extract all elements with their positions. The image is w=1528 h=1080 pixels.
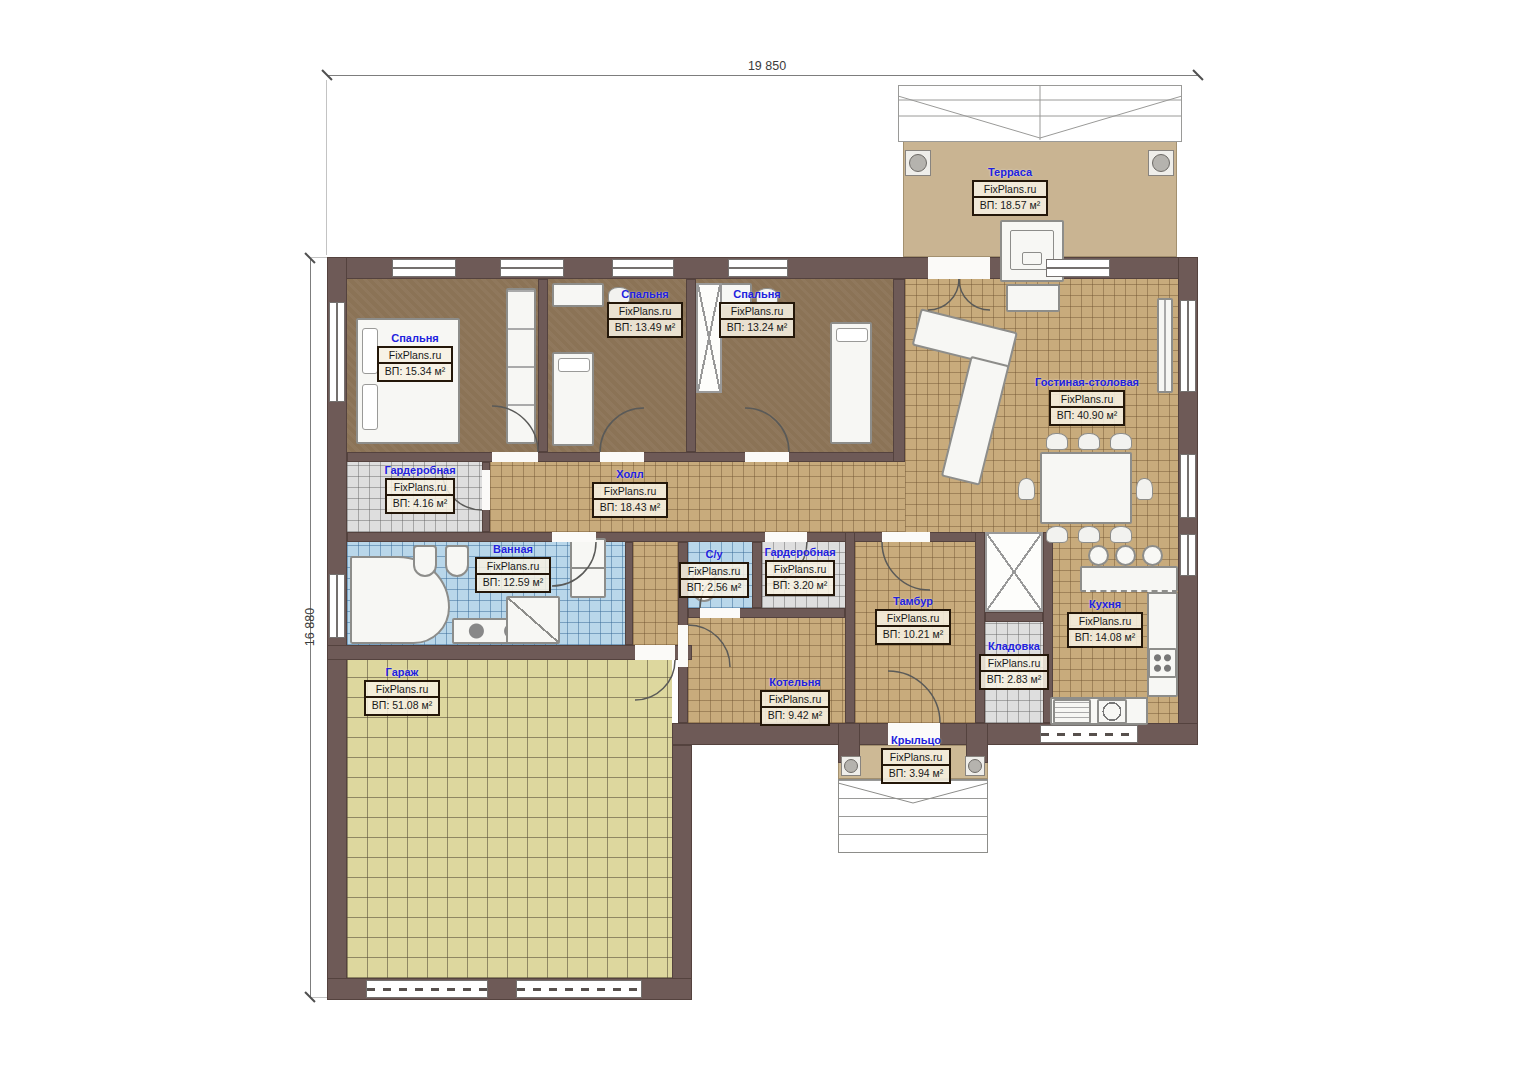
door-opening [678, 625, 688, 667]
room-brand: FixPlans.ru [762, 692, 828, 708]
room-brand: FixPlans.ru [981, 656, 1047, 672]
window [728, 259, 788, 277]
room-info-box: FixPlans.ru ВП: 3.94 м² [881, 748, 951, 784]
room-info-box: FixPlans.ru ВП: 12.59 м² [475, 557, 551, 593]
room-label-wardrobe2: Гардеробная FixPlans.ru ВП: 3.20 м² [740, 546, 860, 596]
garage-door [366, 980, 488, 998]
door-opening [765, 532, 807, 542]
window [1180, 300, 1196, 392]
door-opening [492, 452, 538, 462]
kitchen-sink [1097, 699, 1127, 724]
room-area: ВП: 10.21 м² [877, 627, 949, 643]
room-info-box: FixPlans.ru ВП: 18.43 м² [592, 482, 668, 518]
bar-stool [1088, 545, 1109, 566]
terrace-pillar [905, 150, 931, 176]
room-name: Гардеробная [740, 546, 860, 559]
room-label-bedroom3: Спальня FixPlans.ru ВП: 13.24 м² [697, 288, 817, 338]
room-name: Холл [570, 468, 690, 481]
room-name: Крыльцо [856, 734, 976, 747]
room-info-box: FixPlans.ru ВП: 13.24 м² [719, 302, 795, 338]
room-name: Кладовка [954, 640, 1074, 653]
dining-chair [1078, 526, 1100, 543]
room-label-bedroom2: Спальня FixPlans.ru ВП: 13.49 м² [585, 288, 705, 338]
room-brand: FixPlans.ru [681, 564, 747, 580]
room-info-box: FixPlans.ru ВП: 10.21 м² [875, 609, 951, 645]
wall-bedroom-divider [538, 279, 548, 452]
wall-garage-right [672, 745, 692, 1000]
wall-storage-top [985, 612, 1043, 622]
dishwasher [1053, 699, 1091, 724]
kitchen-bar-counter [1080, 566, 1178, 592]
room-info-box: FixPlans.ru ВП: 15.34 м² [377, 346, 453, 382]
room-label-bathroom: Ванная FixPlans.ru ВП: 12.59 м² [453, 543, 573, 593]
window [329, 302, 345, 402]
room-area: ВП: 3.20 м² [767, 578, 833, 594]
room-brand: FixPlans.ru [767, 562, 833, 578]
room-brand: FixPlans.ru [594, 484, 666, 500]
closet-wardrobe [985, 532, 1043, 612]
room-label-living-dining: Гостиная-столовая FixPlans.ru ВП: 40.90 … [999, 376, 1175, 426]
dining-chair [1018, 478, 1035, 500]
wardrobe-unit [506, 288, 536, 444]
dimension-extension-line [311, 997, 327, 998]
dining-chair [1110, 526, 1132, 543]
door-opening [482, 470, 490, 510]
bar-stool [1142, 545, 1163, 566]
room-name: Спальня [355, 332, 475, 345]
room-info-box: FixPlans.ru ВП: 3.20 м² [765, 560, 835, 596]
room-label-storage: Кладовка FixPlans.ru ВП: 2.83 м² [954, 640, 1074, 690]
dining-chair [1110, 433, 1132, 450]
hall-floor [490, 462, 905, 532]
pillar-circle [1152, 154, 1170, 172]
window [1046, 259, 1110, 277]
room-brand: FixPlans.ru [366, 682, 438, 698]
room-brand: FixPlans.ru [1069, 614, 1141, 630]
room-area: ВП: 9.42 м² [762, 708, 828, 724]
window [1180, 534, 1196, 576]
room-label-boiler: Котельня FixPlans.ru ВП: 9.42 м² [735, 676, 855, 726]
room-info-box: FixPlans.ru ВП: 2.83 м² [979, 654, 1049, 690]
window [500, 259, 564, 277]
room-label-terrace: Терраса FixPlans.ru ВП: 18.57 м² [950, 166, 1070, 216]
washer-dryer-stack [570, 538, 606, 598]
room-area: ВП: 13.24 м² [721, 320, 793, 336]
kitchen-window [1040, 725, 1138, 743]
room-label-bedroom1: Спальня FixPlans.ru ВП: 15.34 м² [355, 332, 475, 382]
room-brand: FixPlans.ru [877, 611, 949, 627]
room-area: ВП: 14.08 м² [1069, 630, 1141, 646]
stove [1148, 648, 1177, 678]
dimension-line-top [327, 75, 1198, 76]
room-info-box: FixPlans.ru ВП: 4.16 м² [385, 478, 455, 514]
room-label-porch: Крыльцо FixPlans.ru ВП: 3.94 м² [856, 734, 976, 784]
room-label-vestibule: Тамбур FixPlans.ru ВП: 10.21 м² [853, 595, 973, 645]
room-label-hall: Холл FixPlans.ru ВП: 18.43 м² [570, 468, 690, 518]
room-name: Спальня [697, 288, 817, 301]
window [392, 259, 456, 277]
shower [506, 596, 560, 644]
garage-door [516, 980, 642, 998]
door-opening [882, 532, 930, 542]
terrace-bbq-core [1022, 252, 1042, 265]
room-name: Гараж [342, 666, 462, 679]
wall-vestibule-right [975, 532, 985, 723]
dimension-label-top: 19 850 [732, 59, 802, 73]
room-area: ВП: 40.90 м² [1051, 408, 1123, 424]
door-opening [600, 452, 644, 462]
door-opening [745, 452, 789, 462]
room-info-box: FixPlans.ru ВП: 14.08 м² [1067, 612, 1143, 648]
floor-plan: 19 850 16 880 [0, 0, 1528, 1080]
window [1180, 454, 1196, 518]
dining-chair [1046, 526, 1068, 543]
terrace-pillar [1148, 150, 1174, 176]
dining-chair [1046, 433, 1068, 450]
terrace-roof [898, 85, 1182, 142]
room-label-wardrobe1: Гардеробная FixPlans.ru ВП: 4.16 м² [360, 464, 480, 514]
room-brand: FixPlans.ru [477, 559, 549, 575]
room-area: ВП: 13.49 м² [609, 320, 681, 336]
room-info-box: FixPlans.ru ВП: 2.56 м² [679, 562, 749, 598]
room-area: ВП: 12.59 м² [477, 575, 549, 591]
terrace-door-opening [928, 257, 990, 279]
bar-stool [1115, 545, 1136, 566]
room-area: ВП: 18.57 м² [974, 198, 1046, 214]
room-brand: FixPlans.ru [974, 182, 1046, 198]
toilet [413, 545, 437, 577]
room-name: Гардеробная [360, 464, 480, 477]
room-brand: FixPlans.ru [883, 750, 949, 766]
dimension-extension-line [311, 257, 327, 258]
room-name: Терраса [950, 166, 1070, 179]
room-name: Гостиная-столовая [999, 376, 1175, 389]
room-info-box: FixPlans.ru ВП: 51.08 м² [364, 680, 440, 716]
room-brand: FixPlans.ru [379, 348, 451, 364]
bed-pillow [362, 384, 378, 430]
dining-table [1040, 452, 1132, 524]
room-name: Тамбур [853, 595, 973, 608]
room-name: Котельня [735, 676, 855, 689]
room-name: Спальня [585, 288, 705, 301]
window [329, 574, 345, 638]
dimension-label-left: 16 880 [303, 592, 317, 662]
fireplace-hearth [1006, 284, 1060, 312]
dining-chair [1078, 433, 1100, 450]
room-area: ВП: 18.43 м² [594, 500, 666, 516]
room-area: ВП: 2.56 м² [681, 580, 747, 596]
door-opening [552, 532, 596, 542]
wall-bathroom-right [625, 542, 633, 645]
room-brand: FixPlans.ru [609, 304, 681, 320]
window [612, 259, 674, 277]
room-area: ВП: 4.16 м² [387, 496, 453, 512]
room-brand: FixPlans.ru [721, 304, 793, 320]
room-info-box: FixPlans.ru ВП: 18.57 м² [972, 180, 1048, 216]
door-opening [635, 645, 675, 660]
room-area: ВП: 51.08 м² [366, 698, 438, 714]
room-name: Кухня [1045, 598, 1165, 611]
room-brand: FixPlans.ru [387, 480, 453, 496]
dining-chair [1136, 478, 1153, 500]
bed-pillow [558, 358, 590, 372]
door-opening [700, 608, 740, 618]
room-info-box: FixPlans.ru ВП: 9.42 м² [760, 690, 830, 726]
room-area: ВП: 3.94 м² [883, 766, 949, 782]
bed-pillow [836, 328, 868, 342]
pillar-circle [909, 154, 927, 172]
room-info-box: FixPlans.ru ВП: 13.49 м² [607, 302, 683, 338]
bed [552, 352, 594, 446]
dimension-extension-line [326, 80, 327, 255]
bed [830, 322, 872, 444]
room-name: Ванная [453, 543, 573, 556]
room-area: ВП: 2.83 м² [981, 672, 1047, 688]
room-info-box: FixPlans.ru ВП: 40.90 м² [1049, 390, 1125, 426]
porch-steps [838, 779, 988, 853]
room-brand: FixPlans.ru [1051, 392, 1123, 408]
room-label-garage: Гараж FixPlans.ru ВП: 51.08 м² [342, 666, 462, 716]
room-area: ВП: 15.34 м² [379, 364, 451, 380]
